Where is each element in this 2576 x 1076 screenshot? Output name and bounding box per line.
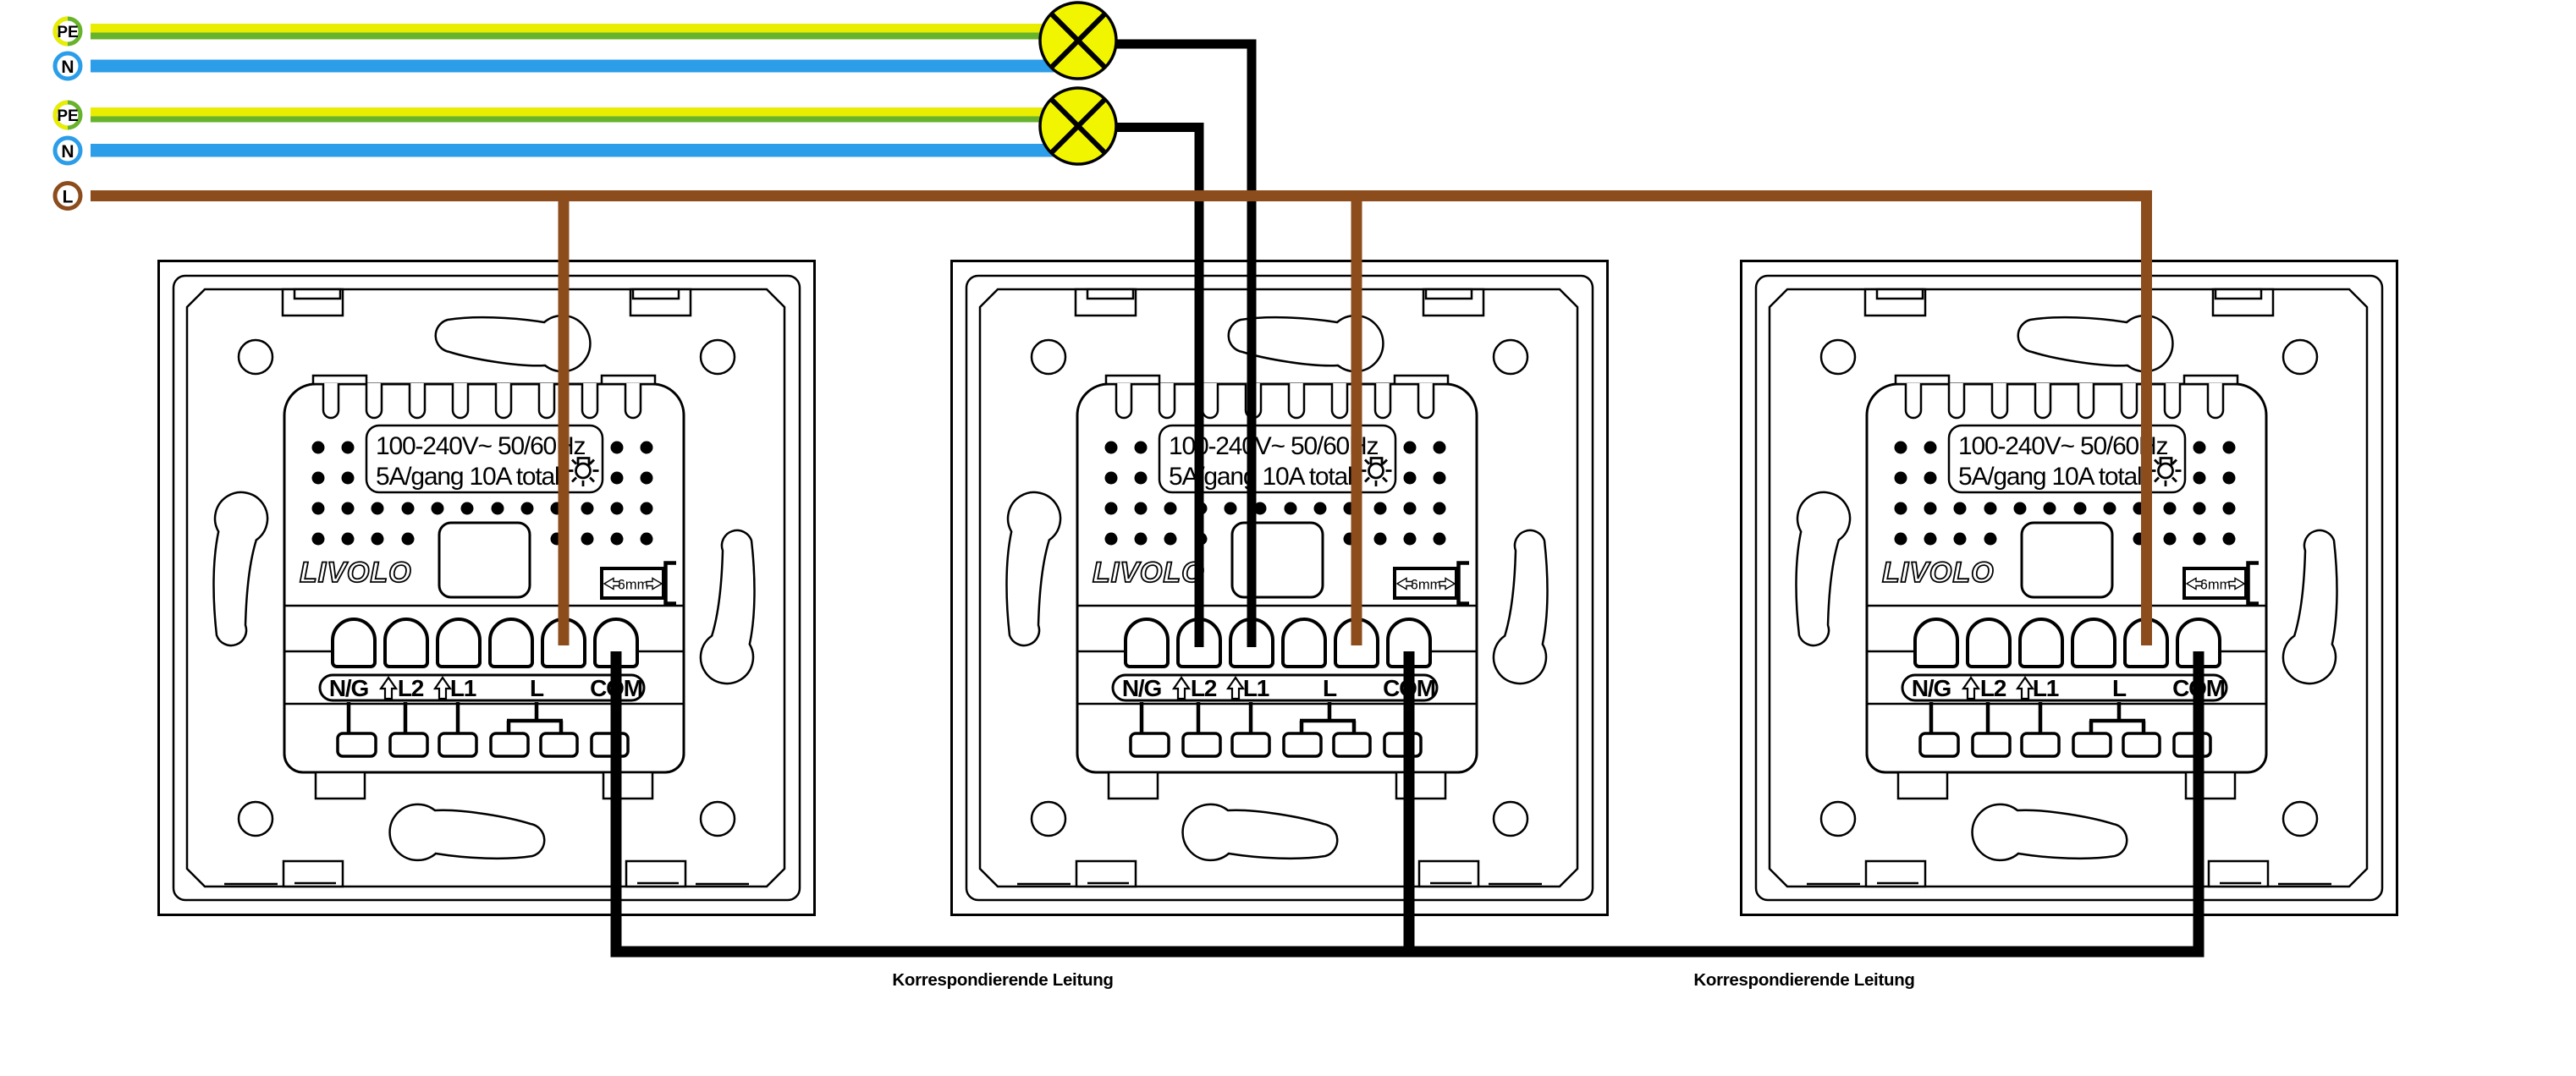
svg-text:L: L (63, 188, 74, 207)
svg-text:PE: PE (57, 24, 78, 41)
svg-text:N: N (61, 142, 74, 162)
svg-text:Korrespondierende Leitung: Korrespondierende Leitung (892, 970, 1113, 990)
svg-text:Korrespondierende Leitung: Korrespondierende Leitung (1693, 970, 1914, 990)
svg-text:N: N (61, 58, 74, 77)
svg-text:PE: PE (57, 107, 78, 125)
